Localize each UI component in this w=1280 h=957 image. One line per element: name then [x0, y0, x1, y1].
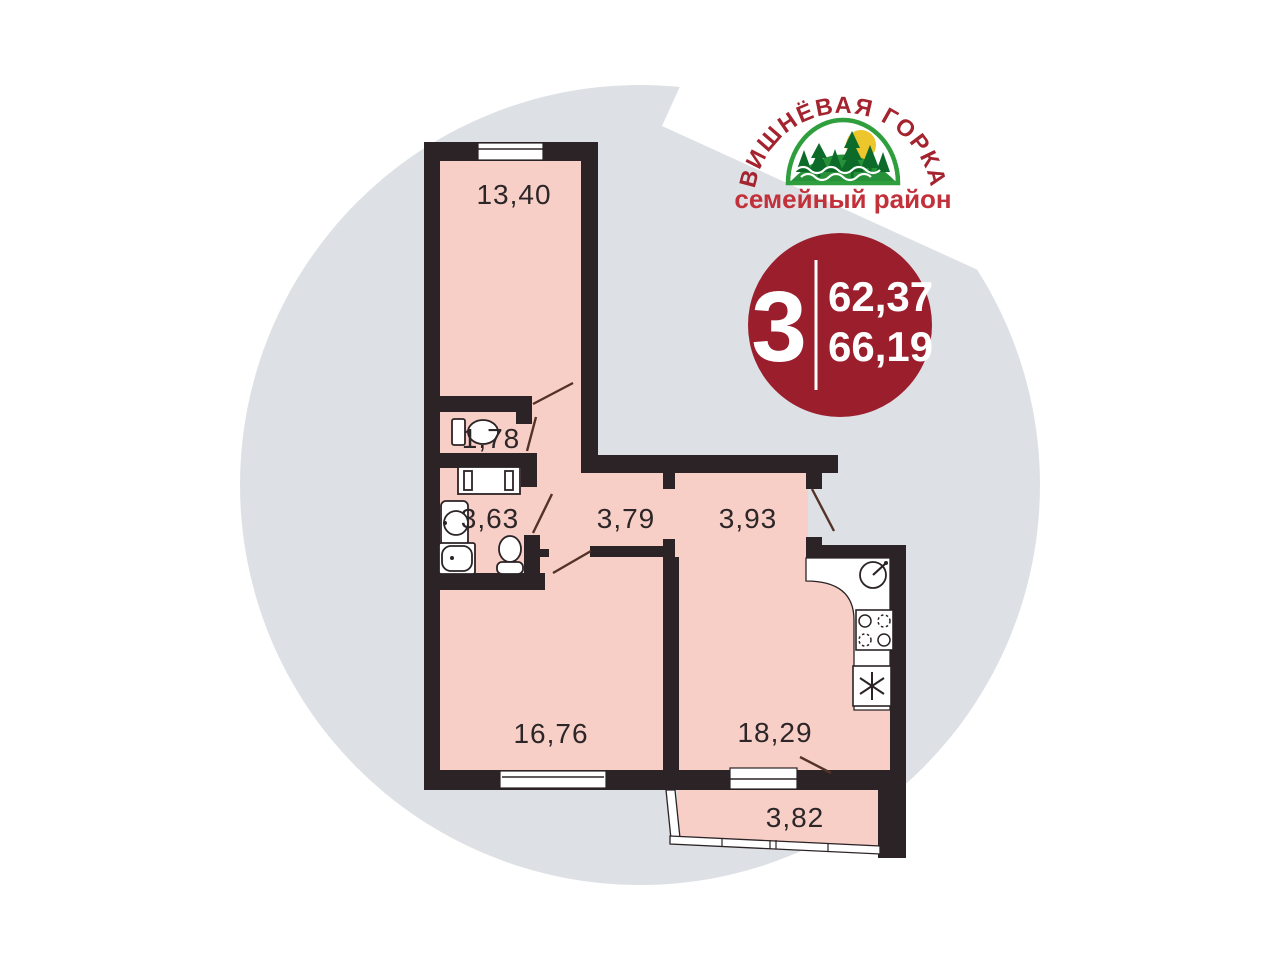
wall-outer-bottom — [424, 770, 906, 790]
wall-bath-jamb — [540, 549, 549, 557]
room-area-label: 3,79 — [597, 503, 656, 534]
room-area-label: 16,76 — [513, 718, 588, 749]
bathtub-icon — [439, 543, 475, 574]
washing-machine-icon — [458, 467, 520, 494]
badge-rooms-count: 3 — [751, 271, 807, 383]
wall-corridor-hall-stub — [663, 473, 675, 489]
wall-outer-right — [890, 545, 906, 790]
wall-corridor-hall-bottom — [663, 539, 675, 557]
window-bedroom — [500, 771, 606, 788]
wall-hall-top — [581, 455, 838, 473]
room-area-label: 3,82 — [766, 802, 825, 833]
wall-room-right — [581, 142, 598, 473]
toilet-icon — [497, 536, 523, 574]
room-area-label: 3,63 — [461, 503, 520, 534]
wall-entrance-stub-top — [806, 473, 822, 489]
cloud-icon — [825, 137, 837, 149]
room-area-label: 3,93 — [719, 503, 778, 534]
wall-wc-stub — [516, 396, 532, 424]
stove-icon — [856, 610, 893, 650]
wall-bath-bottom — [424, 573, 545, 590]
wall-bedroom-kitchen — [663, 557, 679, 770]
wall-room-bottom — [424, 396, 522, 412]
wall-bath-stub-top — [521, 453, 537, 487]
floorplan-graphic: 13,40 1,78 3,63 3,79 3,93 16,76 18,29 3,… — [0, 0, 1280, 957]
room-area-label: 18,29 — [737, 717, 812, 748]
logo-subtitle: семейный район — [734, 184, 951, 214]
window-top — [478, 143, 543, 160]
wall-corridor-bedroom — [590, 546, 665, 557]
room-area-label: 1,78 — [462, 423, 521, 454]
badge-area-total: 62,37 — [828, 273, 933, 320]
room-area-label: 13,40 — [476, 179, 551, 210]
badge-area-living: 66,19 — [828, 323, 933, 370]
fridge-icon — [853, 666, 891, 706]
wall-balcony-right — [878, 790, 906, 858]
rooms-badge: 3 62,37 66,19 — [748, 233, 933, 417]
page: 13,40 1,78 3,63 3,79 3,93 16,76 18,29 3,… — [0, 0, 1280, 957]
wall-wc-bath — [424, 453, 537, 468]
